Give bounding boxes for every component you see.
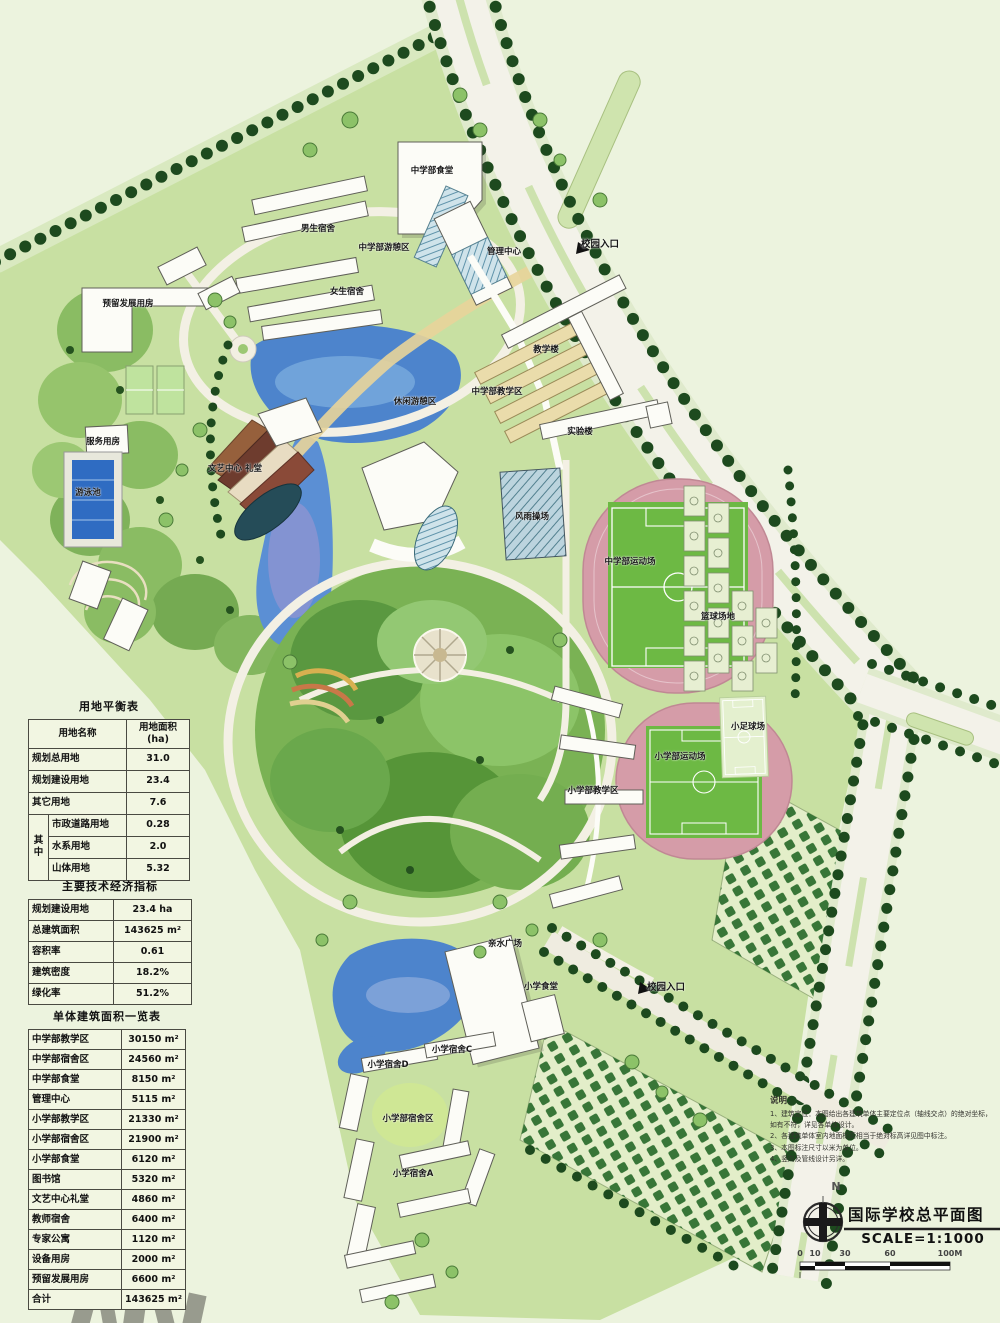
label-ps-teaching-area: 小学部教学区 (567, 784, 618, 796)
building-areas-table: 单体建筑面积一览表 中学部教学区30150 m² 中学部宿舍区24560 m² … (28, 1008, 186, 1310)
table-row: 小学部教学区21330 m² (29, 1110, 186, 1130)
label-ms-teaching-area: 中学部教学区 (471, 385, 522, 397)
note-item: 2、各建筑单体室内地面标高相当于绝对标高详见图中标注。 (770, 1131, 998, 1142)
table-row: 其它用地 7.6 (29, 792, 190, 814)
table-row: 规划建设用地23.4 ha (29, 900, 192, 921)
scalebar-tick: 60 (884, 1249, 895, 1258)
col-header-area: 用地面积(ha) (127, 720, 190, 749)
label-ms-leisure-area: 中学部游憩区 (358, 241, 409, 253)
small-football-field (720, 696, 769, 778)
label-ball-courts: 篮球场地 (701, 610, 735, 622)
table-row: 中学部宿舍区24560 m² (29, 1050, 186, 1070)
table-row: 水系用地 2.0 (29, 836, 190, 858)
label-ps-dorm-c: 小学宿舍C (432, 1043, 472, 1055)
scalebar-tick: 100M (938, 1249, 963, 1258)
scalebar-tick: 10 (809, 1249, 820, 1258)
table-row: 容积率0.61 (29, 942, 192, 963)
label-girls-dorm: 女生宿舍 (330, 285, 364, 297)
label-ps-sports-field: 小学部运动场 (654, 750, 705, 762)
label-lake-leisure-area: 休闲游憩区 (394, 395, 437, 407)
table-row: 用地名称 用地面积(ha) (29, 720, 190, 749)
label-teaching-building: 教学楼 (533, 343, 559, 355)
notes-title: 说明： (770, 1094, 998, 1106)
site-plan-page: 校园入口 中学部食堂 男生宿舍 中学部游憩区 女生宿舍 预留发展用房 管理中心 … (0, 0, 1000, 1323)
tech-indicators-title: 主要技术经济指标 (28, 878, 192, 894)
label-boys-dorm: 男生宿舍 (301, 222, 335, 234)
table-row: 规划建设用地 23.4 (29, 770, 190, 792)
table-row: 小学部宿舍区21900 m² (29, 1130, 186, 1150)
table-row: 合计143625 m² (29, 1290, 186, 1310)
tech-indicators-table: 主要技术经济指标 规划建设用地23.4 ha 总建筑面积143625 m² 容积… (28, 878, 192, 1005)
table-row: 设备用房2000 m² (29, 1250, 186, 1270)
label-ps-dorm-a: 小学宿舍A (393, 1167, 434, 1179)
table-row: 绿化率51.2% (29, 984, 192, 1005)
drawing-title: 国际学校总平面图 (848, 1203, 1000, 1225)
label-campus-entrance-bottom: 校园入口 (647, 979, 685, 993)
label-ms-sports-field: 中学部运动场 (604, 555, 655, 567)
label-management-center: 管理中心 (487, 245, 521, 257)
label-small-football-field: 小足球场 (731, 720, 765, 732)
scalebar-tick: 30 (839, 1249, 850, 1258)
table-row: 总建筑面积143625 m² (29, 921, 192, 942)
scalebar-tick: 0 (797, 1249, 803, 1258)
note-item: 3、本图标注尺寸以米为单位。 (770, 1143, 998, 1154)
table-row: 中学部食堂8150 m² (29, 1070, 186, 1090)
table-row: 小学部食堂6120 m² (29, 1150, 186, 1170)
north-label: N (831, 1180, 840, 1193)
note-item: 4、竖向及管线设计另详。 (770, 1154, 998, 1165)
label-ps-dorm-area: 小学部宿舍区 (382, 1112, 433, 1124)
label-waterfront-plaza: 亲水广场 (488, 937, 522, 949)
table-row: 预留发展用房6600 m² (29, 1270, 186, 1290)
building-areas-title: 单体建筑面积一览表 (28, 1008, 186, 1024)
label-swimming-pool: 游泳池 (75, 486, 101, 498)
table-row: 其中 市政道路用地 0.28 (29, 814, 190, 836)
notes-block: 说明： 1、建筑定位：本图给出各建筑单体主要定位点（轴线交点）的绝对坐标，如有不… (770, 1094, 998, 1166)
table-row: 山体用地 5.32 (29, 858, 190, 880)
land-balance-table: 用地平衡表 用地名称 用地面积(ha) 规划总用地 31.0 规划建设用地 23… (28, 698, 190, 881)
label-indoor-gym: 风雨操场 (515, 510, 549, 522)
sub-label-cell: 其中 (29, 814, 49, 880)
table-row: 图书馆5320 m² (29, 1170, 186, 1190)
col-header-name: 用地名称 (29, 720, 127, 749)
table-row: 文艺中心礼堂4860 m² (29, 1190, 186, 1210)
label-reserved-development: 预留发展用房 (102, 297, 153, 309)
land-balance-title: 用地平衡表 (28, 698, 190, 714)
table-row: 教师宿舍6400 m² (29, 1210, 186, 1230)
note-item: 1、建筑定位：本图给出各建筑单体主要定位点（轴线交点）的绝对坐标，如有不符，详见… (770, 1109, 998, 1130)
table-row: 建筑密度18.2% (29, 963, 192, 984)
table-row: 专家公寓1120 m² (29, 1230, 186, 1250)
label-campus-entrance-top: 校园入口 (581, 236, 619, 250)
table-row: 中学部教学区30150 m² (29, 1030, 186, 1050)
label-service-rooms: 服务用房 (86, 435, 120, 447)
label-ps-dining-hall: 小学食堂 (524, 980, 558, 992)
table-row: 管理中心5115 m² (29, 1090, 186, 1110)
drawing-scale: SCALE=1:1000 (848, 1231, 998, 1247)
table-row: 规划总用地 31.0 (29, 748, 190, 770)
label-lab-building: 实验楼 (567, 425, 593, 437)
label-ms-dining-hall: 中学部食堂 (411, 164, 454, 176)
label-arts-center-auditorium: 文艺中心 礼堂 (208, 462, 262, 474)
roundabout (230, 336, 256, 362)
label-ps-dorm-d: 小学宿舍D (367, 1058, 408, 1070)
